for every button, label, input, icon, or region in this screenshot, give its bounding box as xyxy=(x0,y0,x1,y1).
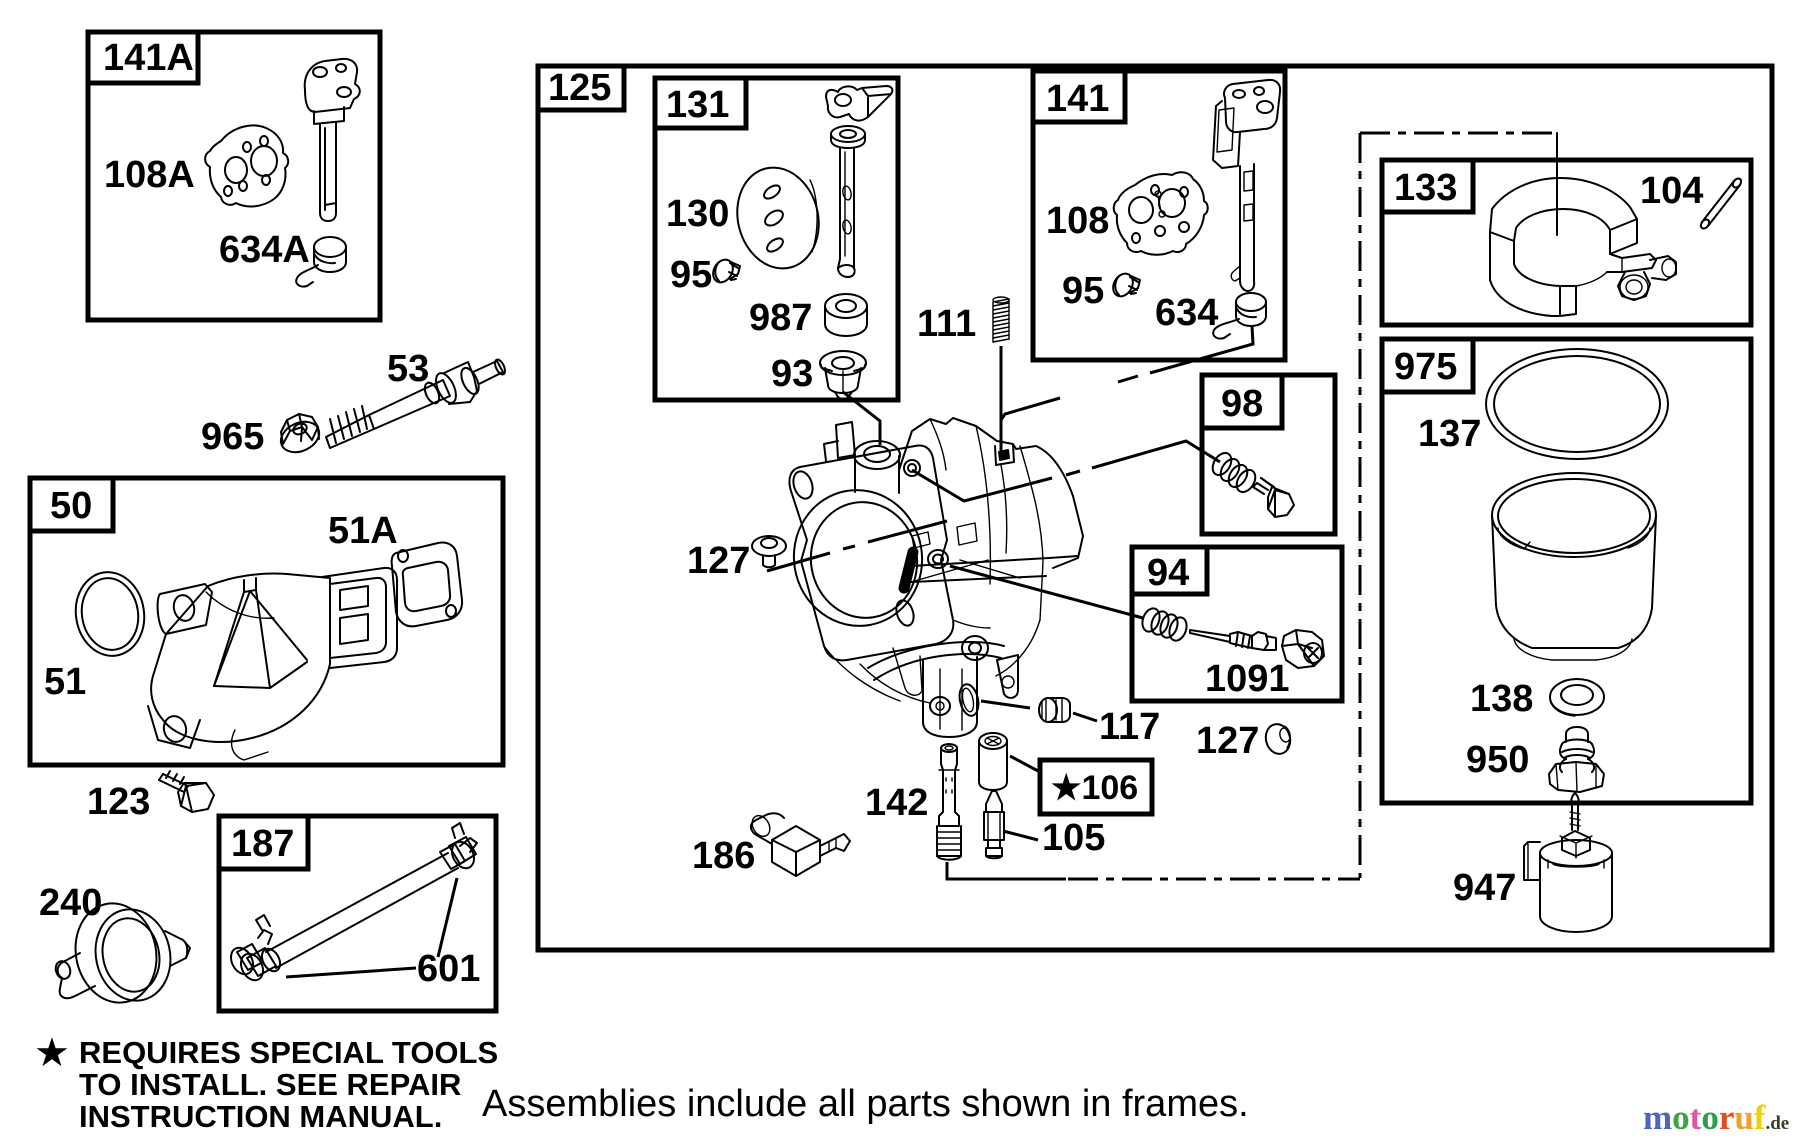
svg-text:965: 965 xyxy=(201,416,264,458)
svg-text:95: 95 xyxy=(670,254,712,296)
svg-text:★106: ★106 xyxy=(1051,769,1138,807)
svg-text:138: 138 xyxy=(1470,678,1533,720)
svg-text:Assemblies include all parts s: Assemblies include all parts shown in fr… xyxy=(482,1083,1249,1125)
svg-text:111: 111 xyxy=(917,303,976,345)
svg-text:125: 125 xyxy=(548,67,611,109)
svg-text:141A: 141A xyxy=(103,37,194,79)
svg-text:51A: 51A xyxy=(328,510,398,552)
svg-text:50: 50 xyxy=(50,485,92,527)
svg-text:51: 51 xyxy=(44,661,86,703)
svg-text:127: 127 xyxy=(1196,720,1259,762)
svg-text:187: 187 xyxy=(231,823,294,865)
svg-text:1091: 1091 xyxy=(1205,658,1290,700)
svg-text:947: 947 xyxy=(1453,867,1516,909)
svg-text:108A: 108A xyxy=(104,154,195,196)
svg-text:105: 105 xyxy=(1042,817,1105,859)
svg-text:104: 104 xyxy=(1640,170,1703,212)
svg-text:130: 130 xyxy=(666,193,729,235)
svg-text:53: 53 xyxy=(387,348,429,390)
svg-text:117: 117 xyxy=(1099,706,1160,748)
svg-text:INSTRUCTION MANUAL.: INSTRUCTION MANUAL. xyxy=(79,1099,442,1134)
svg-text:240: 240 xyxy=(39,882,102,924)
svg-text:131: 131 xyxy=(666,84,729,126)
svg-text:142: 142 xyxy=(865,782,928,824)
svg-text:95: 95 xyxy=(1062,270,1104,312)
svg-text:141: 141 xyxy=(1046,78,1109,120)
svg-text:634A: 634A xyxy=(219,229,310,271)
svg-text:98: 98 xyxy=(1221,383,1263,425)
svg-text:987: 987 xyxy=(749,297,812,339)
svg-text:94: 94 xyxy=(1147,552,1189,594)
svg-text:93: 93 xyxy=(771,353,813,395)
svg-text:TO INSTALL. SEE REPAIR: TO INSTALL. SEE REPAIR xyxy=(79,1067,461,1102)
svg-text:186: 186 xyxy=(692,835,755,877)
svg-text:634: 634 xyxy=(1155,292,1218,334)
svg-text:REQUIRES SPECIAL TOOLS: REQUIRES SPECIAL TOOLS xyxy=(79,1035,498,1070)
svg-text:127: 127 xyxy=(687,540,750,582)
svg-text:975: 975 xyxy=(1394,346,1457,388)
svg-text:137: 137 xyxy=(1418,413,1481,455)
svg-text:★: ★ xyxy=(34,1031,70,1075)
svg-text:108: 108 xyxy=(1046,200,1109,242)
svg-text:123: 123 xyxy=(87,781,150,823)
svg-text:133: 133 xyxy=(1394,167,1457,209)
svg-text:950: 950 xyxy=(1466,739,1529,781)
svg-text:601: 601 xyxy=(417,948,480,990)
